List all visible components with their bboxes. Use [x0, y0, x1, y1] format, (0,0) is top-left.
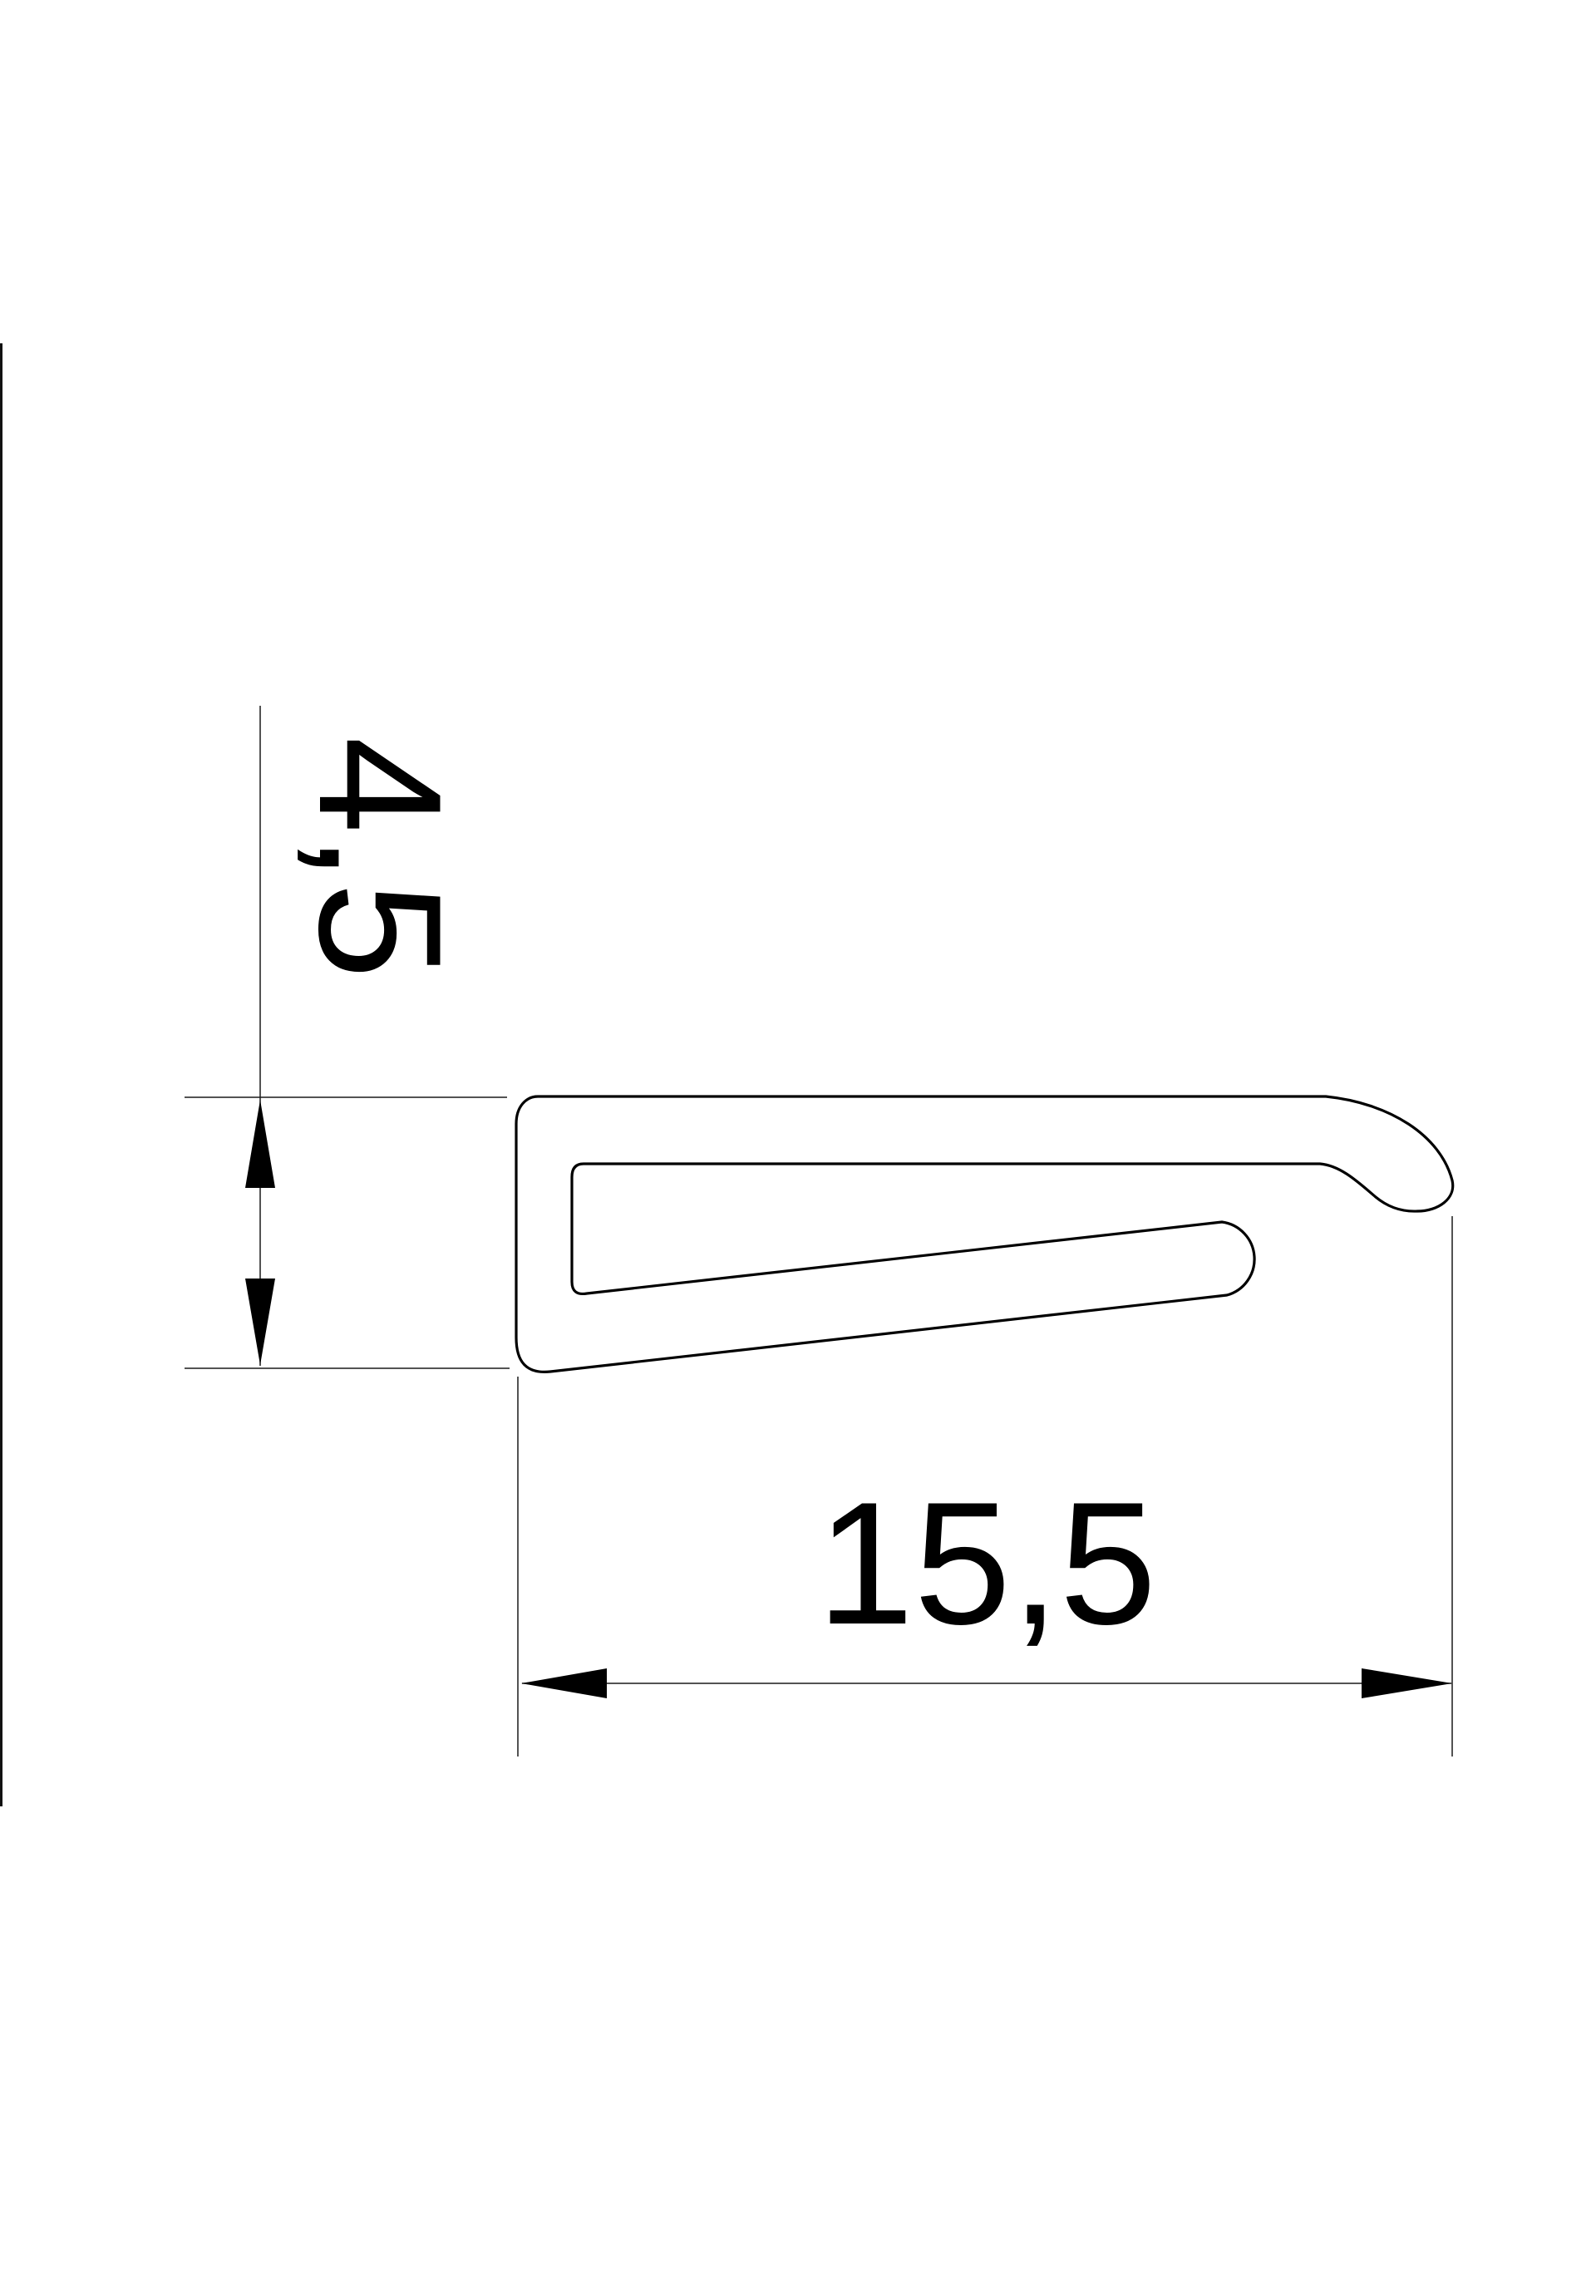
arrowhead-right-icon	[1362, 1668, 1452, 1698]
drawing-page: 4,5 15,5	[0, 0, 1596, 2296]
frame-border-left	[0, 343, 2, 1806]
arrowhead-down-icon	[245, 1279, 275, 1365]
arrowhead-up-icon	[245, 1100, 275, 1188]
arrowhead-left-icon	[521, 1668, 607, 1698]
profile-outline	[516, 1096, 1453, 1372]
dimension-width: 15,5	[518, 1216, 1452, 1756]
technical-drawing: 4,5 15,5	[0, 0, 1596, 2296]
dimension-height: 4,5	[185, 706, 510, 1368]
dimension-width-label: 15,5	[817, 1466, 1157, 1661]
dimension-height-label: 4,5	[283, 737, 478, 979]
